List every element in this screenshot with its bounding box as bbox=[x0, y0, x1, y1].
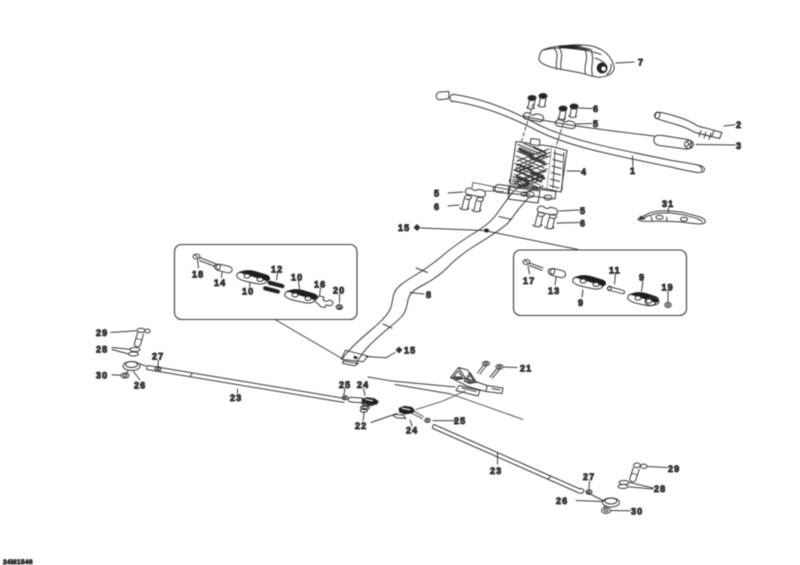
svg-text:22: 22 bbox=[355, 421, 367, 431]
svg-text:6: 6 bbox=[434, 202, 440, 212]
svg-text:23: 23 bbox=[230, 393, 242, 403]
svg-text:3: 3 bbox=[736, 141, 742, 151]
svg-text:15: 15 bbox=[398, 223, 410, 233]
svg-text:31: 31 bbox=[662, 199, 674, 209]
svg-text:8: 8 bbox=[426, 290, 432, 300]
svg-text:18: 18 bbox=[192, 270, 204, 280]
svg-text:26: 26 bbox=[134, 381, 146, 391]
svg-text:23: 23 bbox=[490, 466, 502, 476]
svg-text:9: 9 bbox=[578, 298, 584, 308]
svg-text:4: 4 bbox=[581, 167, 587, 177]
svg-text:24M1546: 24M1546 bbox=[3, 559, 33, 565]
svg-text:7: 7 bbox=[638, 58, 644, 68]
svg-text:17: 17 bbox=[523, 276, 535, 286]
svg-text:11: 11 bbox=[609, 266, 621, 276]
svg-text:30: 30 bbox=[96, 371, 108, 381]
svg-text:6: 6 bbox=[593, 104, 599, 114]
svg-text:20: 20 bbox=[333, 286, 345, 296]
svg-text:19: 19 bbox=[662, 283, 674, 293]
svg-text:12: 12 bbox=[271, 265, 283, 275]
svg-text:27: 27 bbox=[152, 352, 164, 362]
svg-text:5: 5 bbox=[580, 206, 586, 216]
svg-text:10: 10 bbox=[291, 273, 303, 283]
svg-text:25: 25 bbox=[339, 380, 351, 390]
svg-text:10: 10 bbox=[242, 287, 254, 297]
svg-text:6: 6 bbox=[580, 219, 586, 229]
svg-text:30: 30 bbox=[631, 507, 643, 517]
svg-text:28: 28 bbox=[654, 484, 666, 494]
svg-text:29: 29 bbox=[96, 328, 108, 338]
svg-text:9: 9 bbox=[639, 273, 645, 283]
svg-text:16: 16 bbox=[314, 280, 326, 290]
svg-text:15: 15 bbox=[404, 346, 416, 356]
svg-text:27: 27 bbox=[583, 472, 595, 482]
svg-text:13: 13 bbox=[548, 286, 560, 296]
svg-text:26: 26 bbox=[556, 496, 568, 506]
svg-text:28: 28 bbox=[96, 345, 108, 355]
svg-text:29: 29 bbox=[668, 464, 680, 474]
svg-text:1: 1 bbox=[630, 166, 636, 176]
svg-text:14: 14 bbox=[214, 278, 226, 288]
svg-text:25: 25 bbox=[454, 416, 466, 426]
svg-text:21: 21 bbox=[520, 364, 532, 374]
svg-text:5: 5 bbox=[434, 189, 440, 199]
svg-text:2: 2 bbox=[736, 120, 742, 130]
svg-text:5: 5 bbox=[593, 119, 599, 129]
svg-text:24: 24 bbox=[357, 380, 369, 390]
svg-text:24: 24 bbox=[406, 426, 418, 436]
